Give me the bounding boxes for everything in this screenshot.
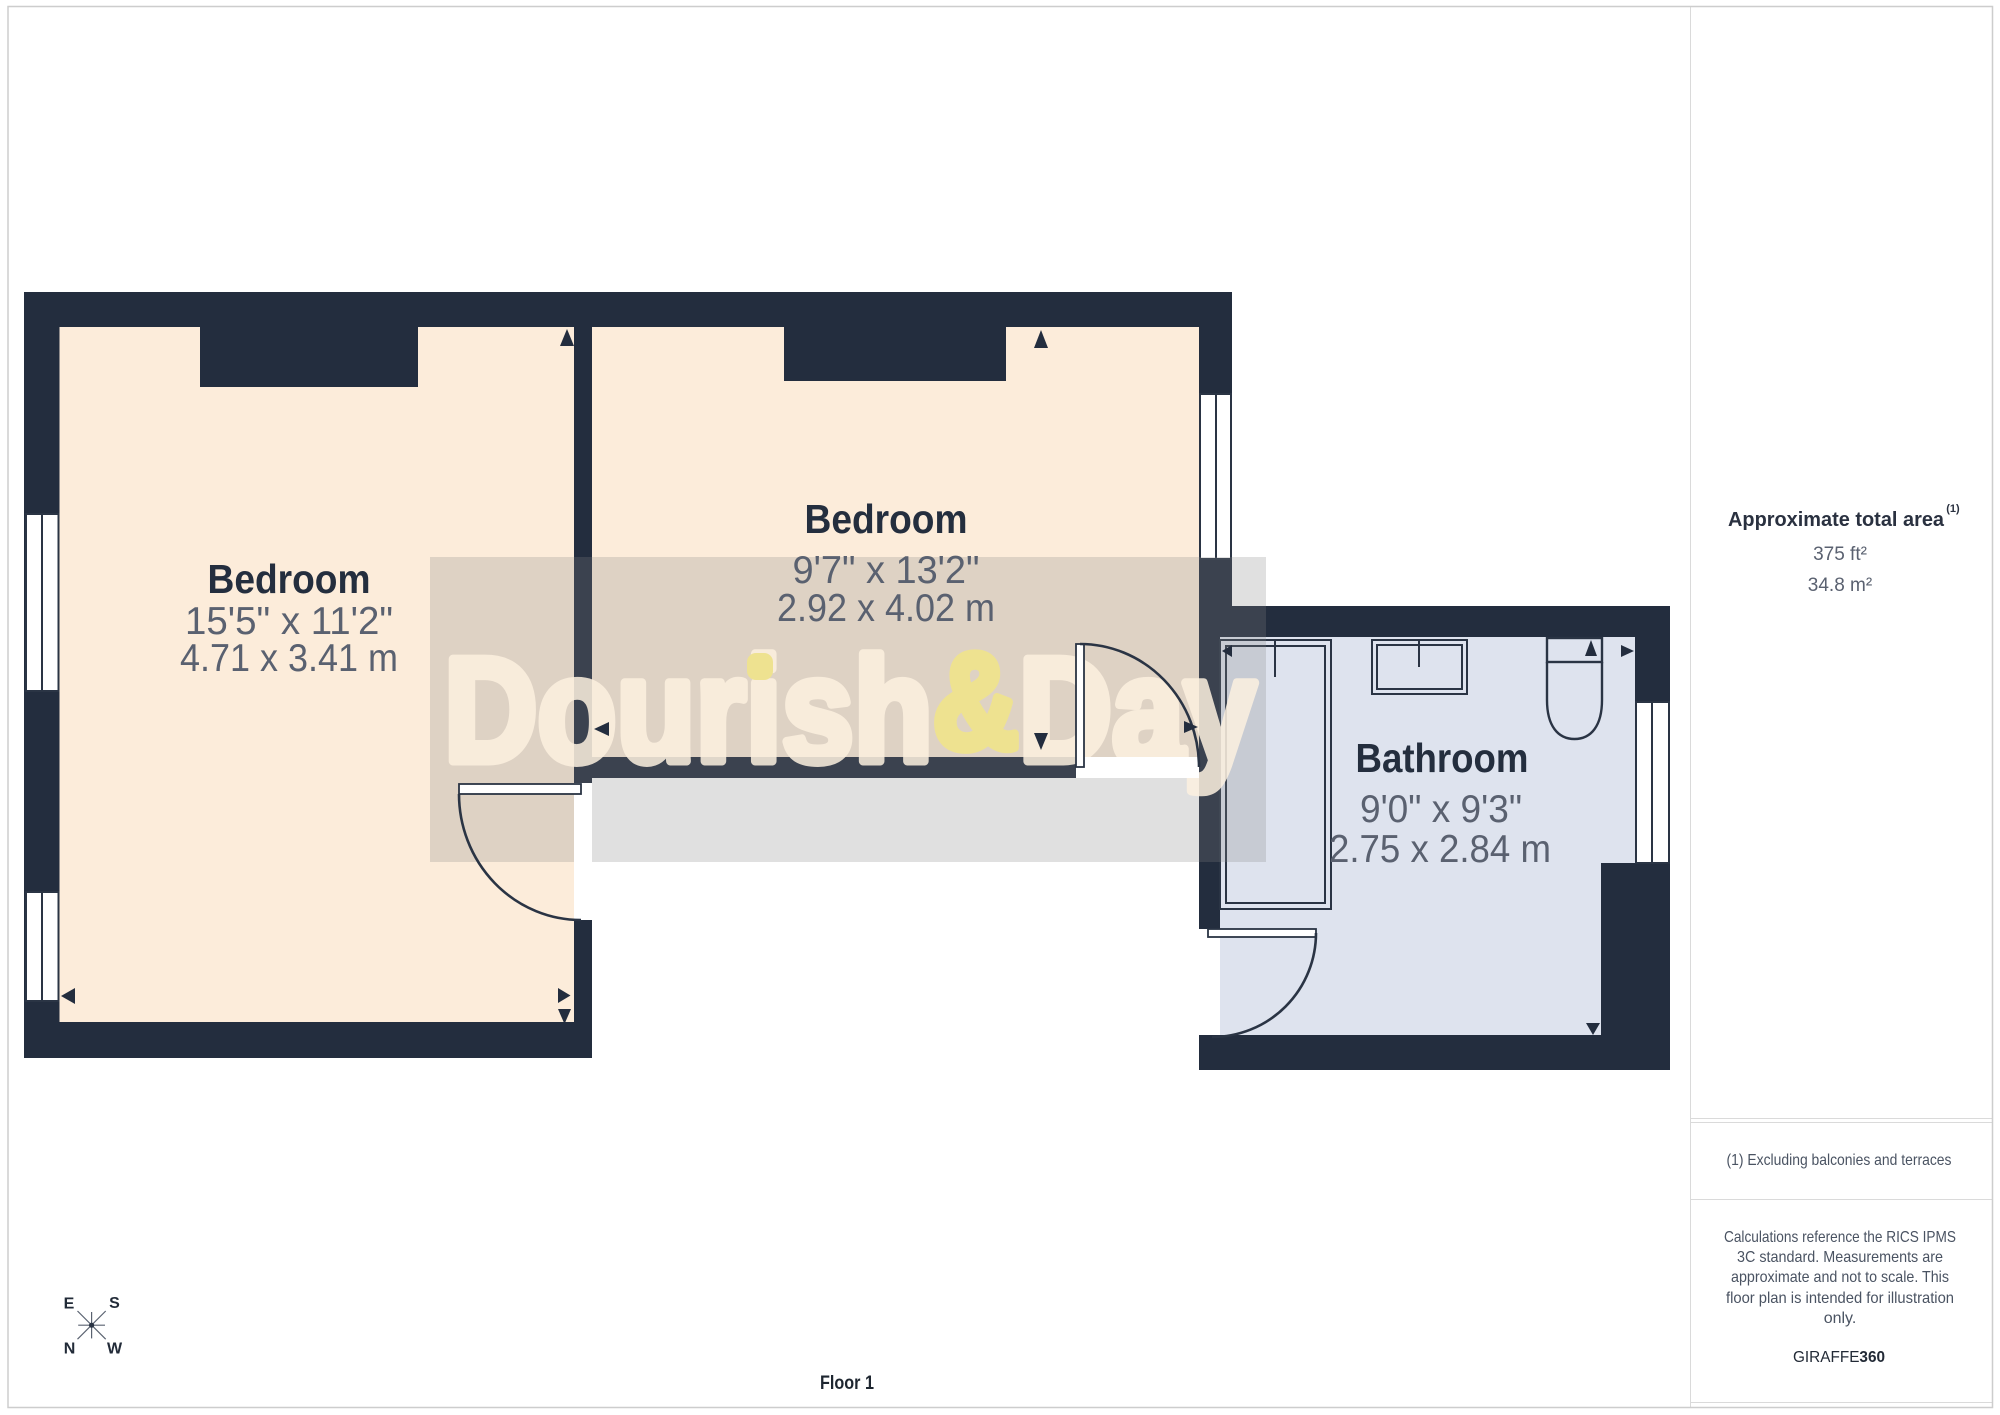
svg-text:375 ft²: 375 ft² (1813, 544, 1867, 565)
svg-text:2.75 x 2.84 m: 2.75 x 2.84 m (1329, 828, 1551, 871)
svg-text:Bedroom: Bedroom (805, 496, 968, 542)
svg-text:Bedroom: Bedroom (208, 556, 371, 602)
svg-text:W: W (107, 1341, 123, 1358)
svg-text:(1) Excluding balconies and te: (1) Excluding balconies and terraces (1727, 1152, 1952, 1169)
svg-text:approximate and not to scale.: approximate and not to scale. This (1731, 1269, 1949, 1286)
svg-text:Bathroom: Bathroom (1356, 735, 1529, 781)
svg-text:S: S (109, 1295, 120, 1312)
svg-text:N: N (64, 1341, 76, 1358)
svg-text:E: E (64, 1296, 75, 1313)
svg-text:9'0" x 9'3": 9'0" x 9'3" (1360, 788, 1522, 831)
svg-text:only.: only. (1824, 1310, 1857, 1327)
svg-text:Calculations reference the RIC: Calculations reference the RICS IPMS (1724, 1229, 1956, 1246)
svg-text:Floor 1: Floor 1 (820, 1373, 874, 1394)
svg-text:34.8 m²: 34.8 m² (1808, 575, 1872, 596)
svg-text:floor plan is intended for ill: floor plan is intended for illustration (1726, 1290, 1954, 1307)
svg-text:GIRAFFE360: GIRAFFE360 (1793, 1349, 1885, 1366)
svg-text:4.71 x 3.41 m: 4.71 x 3.41 m (180, 637, 398, 680)
svg-text:(1): (1) (1946, 503, 1960, 515)
svg-text:2.92 x 4.02 m: 2.92 x 4.02 m (777, 587, 995, 630)
svg-text:3C standard. Measurements are: 3C standard. Measurements are (1737, 1249, 1943, 1266)
svg-text:9'7" x 13'2": 9'7" x 13'2" (793, 549, 980, 592)
svg-text:Approximate total area: Approximate total area (1728, 509, 1945, 531)
